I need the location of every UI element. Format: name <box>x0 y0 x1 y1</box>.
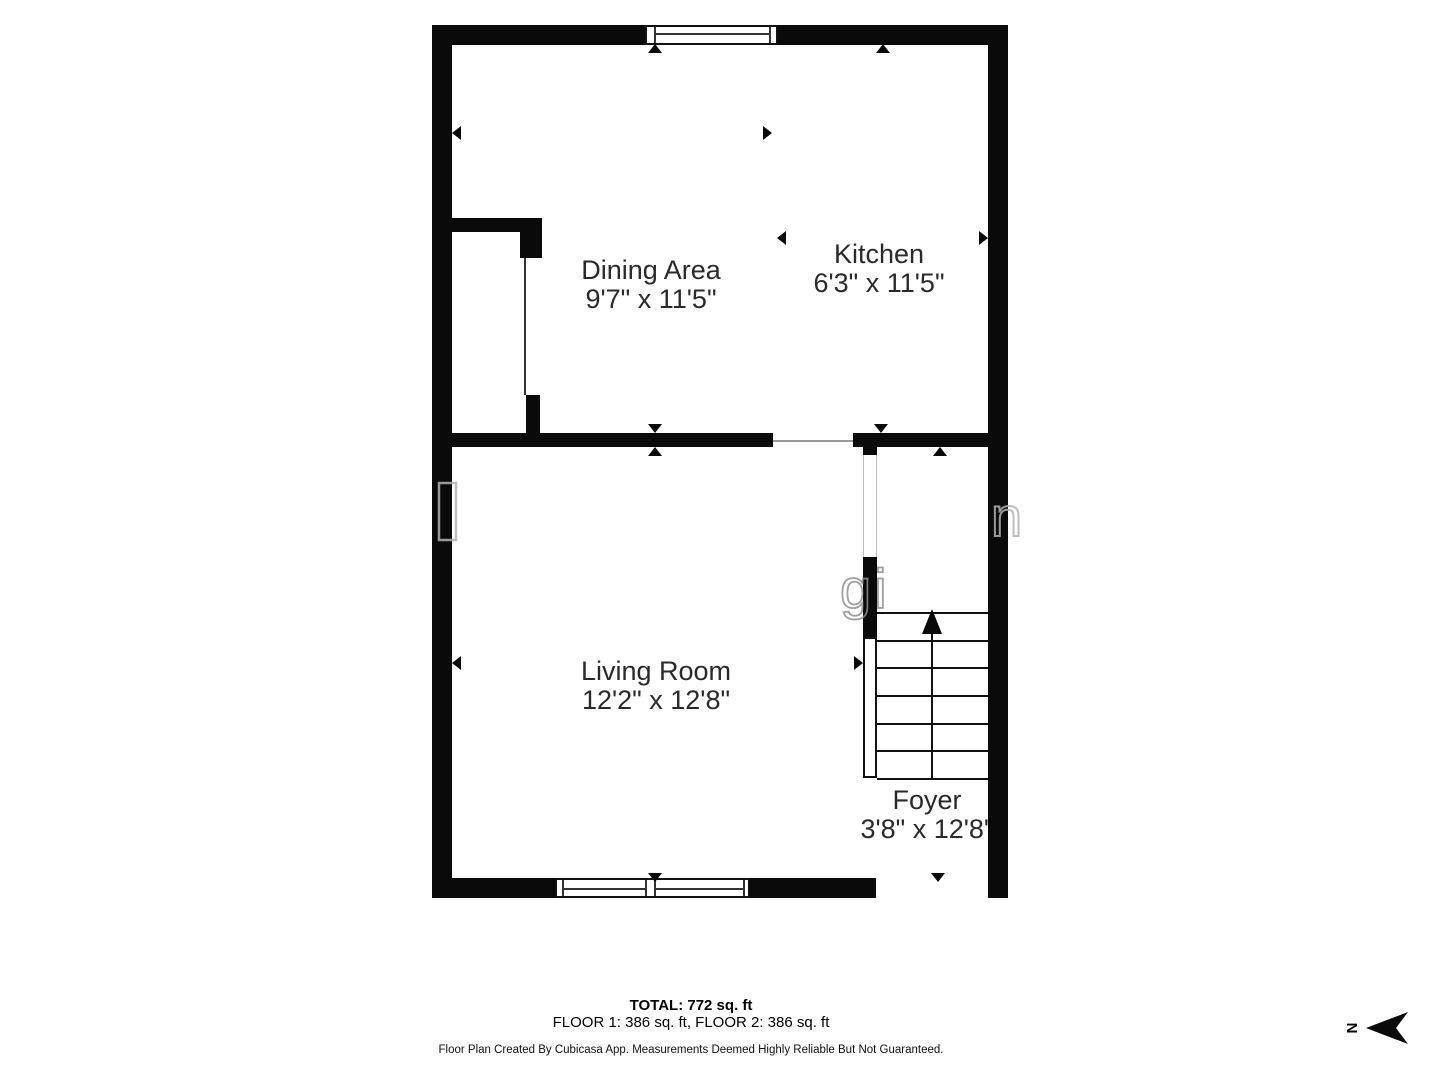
middle-wall-left-segment <box>432 433 773 447</box>
marker-triangle-icon <box>933 447 947 456</box>
divider-wall <box>863 557 877 637</box>
exterior-wall-right <box>988 25 1008 898</box>
stair-tread <box>877 778 988 780</box>
room-label-foyer: Foyer 3'8" x 12'8" <box>860 786 993 844</box>
watermark: gi n <box>430 470 1020 630</box>
doorway-edge-left <box>863 455 864 557</box>
kitchen-room-dimensions: 6'3" x 11'5" <box>813 269 944 298</box>
marker-triangle-icon <box>876 44 890 53</box>
marker-triangle-icon <box>763 126 772 140</box>
stairs-direction-line <box>931 612 933 778</box>
north-arrow-icon <box>1366 1012 1408 1044</box>
marker-triangle-icon <box>979 231 988 245</box>
dining-room-dimensions: 9'7" x 11'5" <box>581 285 721 314</box>
living-room-name: Living Room <box>581 657 731 686</box>
exterior-wall-left <box>432 25 452 898</box>
room-label-kitchen: Kitchen 6'3" x 11'5" <box>813 240 944 298</box>
floor-plan-page: { "page": {"background": "#ffffff", "wal… <box>0 0 1440 1080</box>
living-room-dimensions: 12'2" x 12'8" <box>581 686 731 715</box>
closet-opening-line <box>524 258 526 395</box>
total-area-text: TOTAL: 772 sq. ft <box>630 997 753 1014</box>
closet-wall-top <box>452 218 542 232</box>
room-label-living: Living Room 12'2" x 12'8" <box>581 657 731 715</box>
marker-triangle-icon <box>874 424 888 433</box>
stair-railing <box>863 637 877 778</box>
marker-triangle-icon <box>854 656 863 670</box>
entry-door-marker-icon <box>931 873 945 882</box>
kitchen-foyer-opening-threshold <box>773 440 853 442</box>
compass: N <box>1342 1008 1412 1048</box>
floor-areas-text: FLOOR 1: 386 sq. ft, FLOOR 2: 386 sq. ft <box>553 1014 830 1031</box>
north-label: N <box>1343 1023 1360 1034</box>
marker-triangle-icon <box>777 231 786 245</box>
foyer-room-dimensions: 3'8" x 12'8" <box>860 815 993 844</box>
disclaimer-text: Floor Plan Created By Cubicasa App. Meas… <box>439 1044 944 1056</box>
foyer-room-name: Foyer <box>860 786 993 815</box>
closet-wall-stub-upper <box>520 232 542 258</box>
divider-wall-stub <box>863 447 877 455</box>
stairs-up-arrow-icon <box>922 609 942 634</box>
marker-triangle-icon <box>452 126 461 140</box>
middle-wall-right-segment <box>853 433 988 447</box>
kitchen-room-name: Kitchen <box>813 240 944 269</box>
doorway-edge-right <box>876 455 877 557</box>
marker-triangle-icon <box>648 424 662 433</box>
dining-room-name: Dining Area <box>581 256 721 285</box>
marker-triangle-icon <box>648 44 662 53</box>
window-top <box>645 25 778 45</box>
closet-wall-stub-lower <box>526 395 540 433</box>
marker-triangle-icon <box>648 873 662 882</box>
room-label-dining: Dining Area 9'7" x 11'5" <box>581 256 721 314</box>
marker-triangle-icon <box>648 447 662 456</box>
marker-triangle-icon <box>452 656 461 670</box>
